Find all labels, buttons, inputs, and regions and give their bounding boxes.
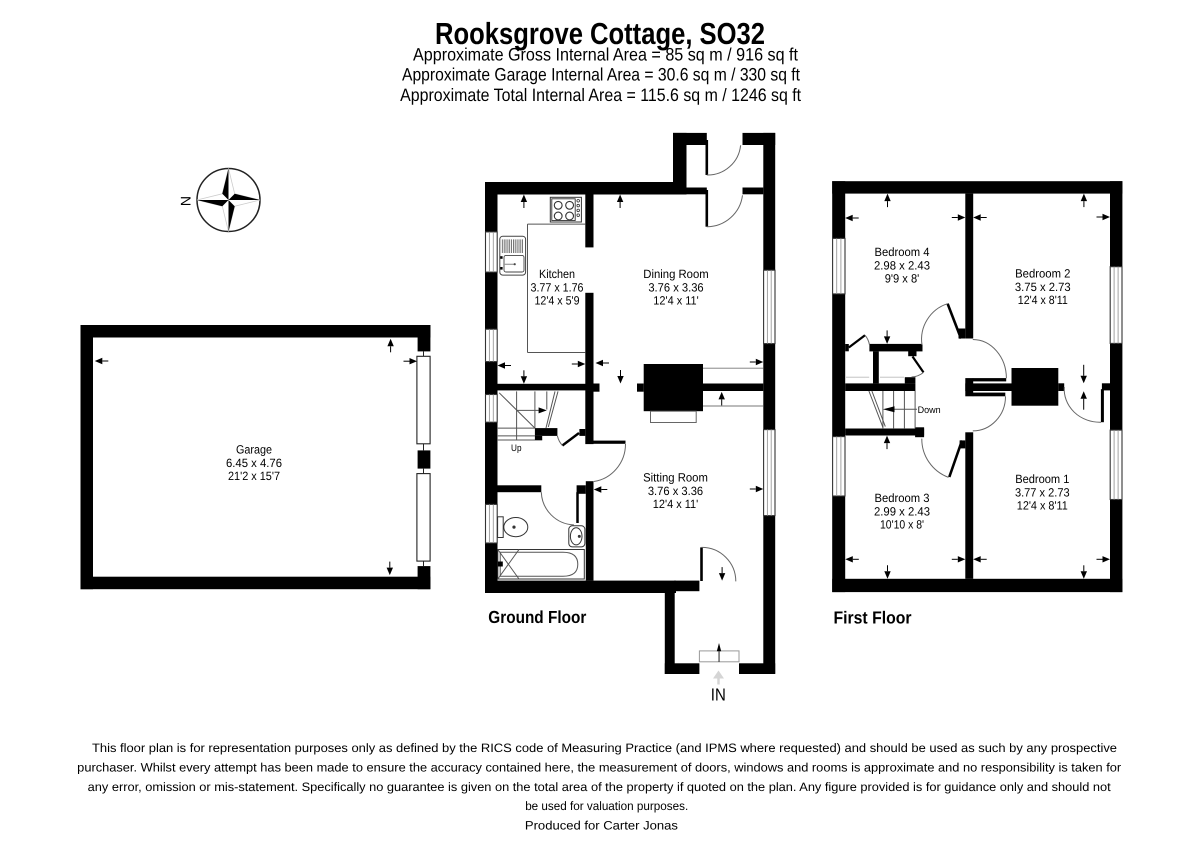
svg-text:Kitchen: Kitchen <box>539 267 575 281</box>
svg-text:2.99 x 2.43: 2.99 x 2.43 <box>874 504 930 518</box>
svg-text:3.76 x 3.36: 3.76 x 3.36 <box>648 484 704 498</box>
svg-text:10'10 x 8': 10'10 x 8' <box>880 518 924 532</box>
svg-text:21'2 x 15'7: 21'2 x 15'7 <box>228 469 280 483</box>
svg-text:This floor plan is for represe: This floor plan is for representation pu… <box>92 741 1117 755</box>
svg-text:Bedroom 4: Bedroom 4 <box>875 245 930 259</box>
svg-text:Dining Room: Dining Room <box>643 267 708 281</box>
svg-text:Bedroom 3: Bedroom 3 <box>875 491 930 505</box>
svg-text:IN: IN <box>711 684 726 704</box>
svg-text:Sitting Room: Sitting Room <box>643 471 708 485</box>
svg-text:Down: Down <box>918 405 941 416</box>
svg-text:12'4 x 5'9: 12'4 x 5'9 <box>535 294 580 308</box>
svg-text:be used for valuation purposes: be used for valuation purposes. <box>525 799 688 813</box>
svg-text:Ground Floor: Ground Floor <box>488 607 586 627</box>
svg-text:12'4 x 8'11: 12'4 x 8'11 <box>1017 499 1068 513</box>
svg-text:3.75 x 2.73: 3.75 x 2.73 <box>1015 280 1071 294</box>
svg-text:12'4 x 11': 12'4 x 11' <box>653 497 698 511</box>
svg-text:Bedroom 2: Bedroom 2 <box>1015 267 1071 281</box>
svg-text:3.76 x 3.36: 3.76 x 3.36 <box>648 280 704 294</box>
svg-text:12'4 x 11': 12'4 x 11' <box>653 294 698 308</box>
svg-text:Bedroom 1: Bedroom 1 <box>1015 472 1069 486</box>
svg-text:12'4 x 8'11: 12'4 x 8'11 <box>1018 293 1068 307</box>
svg-text:3.77 x 2.73: 3.77 x 2.73 <box>1015 485 1070 499</box>
svg-text:any error, omission or mis-sta: any error, omission or mis-statement. Sp… <box>88 780 1112 794</box>
svg-text:Approximate Garage Internal Ar: Approximate Garage Internal Area = 30.6 … <box>402 65 800 85</box>
svg-text:3.77 x 1.76: 3.77 x 1.76 <box>531 280 584 294</box>
svg-text:Produced for Carter Jonas: Produced for Carter Jonas <box>525 819 678 833</box>
svg-text:Up: Up <box>511 443 522 454</box>
svg-text:Garage: Garage <box>236 443 272 457</box>
svg-text:purchaser. Whilst every attemp: purchaser. Whilst every attempt has been… <box>77 760 1121 774</box>
svg-text:Approximate Gross Internal Are: Approximate Gross Internal Area = 85 sq … <box>413 45 798 65</box>
svg-text:6.45 x 4.76: 6.45 x 4.76 <box>226 456 282 470</box>
svg-text:Approximate Total Internal Are: Approximate Total Internal Area = 115.6 … <box>400 85 801 105</box>
svg-text:First Floor: First Floor <box>834 608 912 628</box>
svg-text:9'9 x 8': 9'9 x 8' <box>885 272 920 286</box>
svg-text:N: N <box>178 196 194 206</box>
svg-text:2.98 x 2.43: 2.98 x 2.43 <box>874 258 930 272</box>
